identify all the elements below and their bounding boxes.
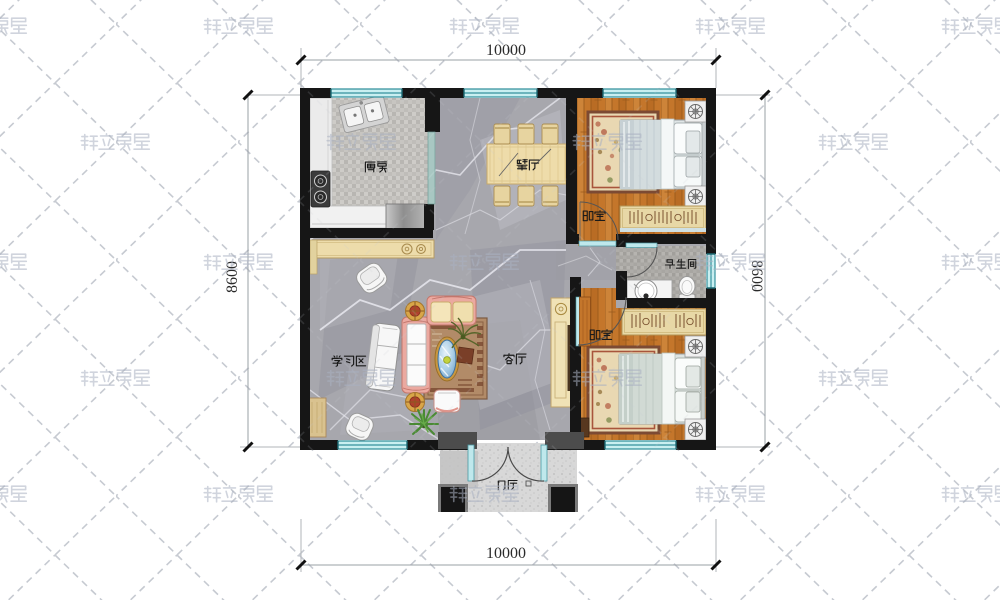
svg-text:10000: 10000	[486, 42, 526, 59]
svg-text:8600: 8600	[224, 261, 241, 293]
svg-text:10000: 10000	[486, 545, 526, 562]
